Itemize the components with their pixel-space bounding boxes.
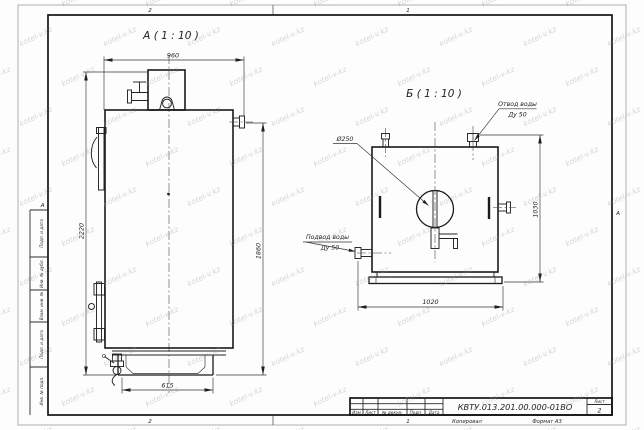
lower-door-hinge <box>89 282 105 342</box>
col-podp: Подп. <box>410 410 423 415</box>
dim-2220-text: 2220 <box>77 223 85 239</box>
callout-diameter-250: Ø250 <box>333 135 429 206</box>
format-label: Формат А3 <box>532 419 562 425</box>
outlet-callout-line2: Ду 50 <box>507 111 526 118</box>
top-left-stub <box>382 128 390 157</box>
lug-hole <box>163 99 172 108</box>
dim-1030-text: 1030 <box>532 201 540 217</box>
drawing-sheet: 2 1 2 1 А А Подп. и дата Инв. № дубл. Вз… <box>0 0 644 430</box>
dim-1860-text: 1860 <box>254 243 262 259</box>
chimney-fitting <box>128 82 149 103</box>
col-izm: Изм <box>352 410 361 415</box>
side-cell-podp-data-2: Подп. и дата <box>39 330 44 359</box>
zone-letter-left: А <box>40 203 45 209</box>
dim-960: 960 <box>104 52 244 117</box>
view-a-front: А ( 1 : 10 ) <box>77 30 266 394</box>
zone-number-top-left: 2 <box>148 8 152 14</box>
zone-number-bottom-right: 1 <box>406 419 410 425</box>
sheet-label: Лист <box>593 399 605 404</box>
callout-inlet: Подвод воды Ду 50 <box>303 234 356 252</box>
callout-outlet: Отвод воды Ду 50 <box>475 101 537 141</box>
dim-1020-text: 1020 <box>422 298 438 306</box>
dim-2220: 2220 <box>77 72 148 375</box>
upper-door-handle <box>91 128 106 191</box>
dim-1860: 1860 <box>216 123 267 375</box>
dim-1020: 1020 <box>358 261 503 311</box>
side-column: Подп. и дата Инв. № дубл. Взам. инв. № П… <box>30 210 48 415</box>
outlet-callout-line1: Отвод воды <box>498 101 537 108</box>
body-center-dot <box>167 193 170 196</box>
view-b-rear: Б ( 1 : 10 ) <box>303 88 544 311</box>
view-b-label: Б ( 1 : 10 ) <box>406 88 462 100</box>
col-dokum: № докум. <box>381 410 403 415</box>
right-side-stub <box>493 202 516 213</box>
dim-615: 615 <box>122 378 213 394</box>
copied-label: Копировал <box>452 419 482 425</box>
col-data: Дата <box>428 410 440 415</box>
technical-drawing: 2 1 2 1 А А Подп. и дата Инв. № дубл. Вз… <box>0 0 644 430</box>
rear-base-skid <box>369 272 502 284</box>
sheet-number: 2 <box>598 408 602 415</box>
drawing-designation: КВТУ.013.201.00.000-01ВО <box>458 402 573 412</box>
damper-handle <box>431 191 458 249</box>
zone-number-bottom-left: 2 <box>148 419 152 425</box>
inlet-stub-rear <box>355 248 391 259</box>
dim-960-text: 960 <box>167 52 179 60</box>
col-list: Лист <box>364 410 376 415</box>
side-cell-inv-podl: Инв. № подл. <box>39 377 44 406</box>
dim-dia250-text: Ø250 <box>336 135 354 143</box>
side-cell-vzam-inv: Взам. инв. № <box>39 291 44 320</box>
drain-valve <box>102 354 123 386</box>
side-cell-podp-data-1: Подп. и дата <box>39 219 44 248</box>
chimney-box <box>148 70 185 110</box>
dim-615-text: 615 <box>161 382 173 390</box>
zone-letter-right: А <box>615 211 620 217</box>
inlet-callout-line1: Подвод воды <box>306 234 349 241</box>
title-block: Изм Лист № докум. Подп. Дата КВТУ.013.20… <box>350 398 612 425</box>
view-a-label: А ( 1 : 10 ) <box>142 30 199 42</box>
outlet-stub-rear <box>468 126 479 160</box>
zone-number-top-right: 1 <box>406 8 410 14</box>
side-cell-inv-dubl: Инв. № дубл. <box>39 259 44 288</box>
